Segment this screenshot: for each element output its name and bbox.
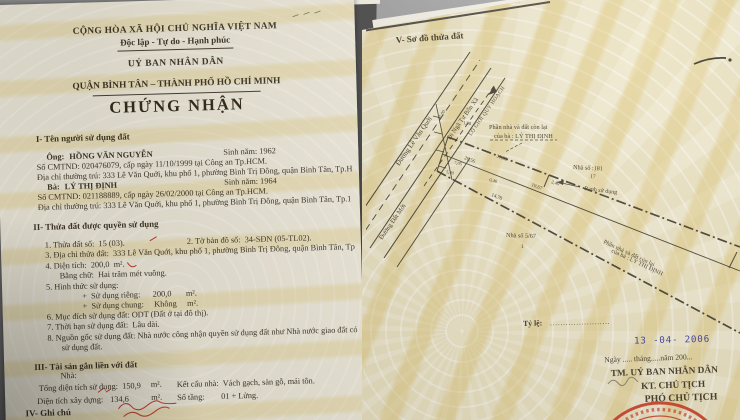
owner-2-label: Bà: xyxy=(47,182,60,191)
owner-2-birth: Sinh năm: 1964 xyxy=(224,177,277,187)
red-mark-area xyxy=(127,262,136,267)
red-check-parcel xyxy=(150,237,157,241)
section-2-heading: II- Thửa đất được quyền sử dụng xyxy=(33,220,158,232)
total-floor-unit: m². xyxy=(151,381,162,390)
district-line: QUẬN BÌNH TÂN – THÀNH PHỐ HỒ CHÍ MINH xyxy=(0,75,356,94)
built-area-unit: m². xyxy=(151,394,162,403)
section-1-heading: I- Tên người sử dụng đất xyxy=(36,132,130,143)
certificate-photo: CỘNG HÒA XÃ HỘI CHỦ NGHĨA VIỆT NAM Độc l… xyxy=(0,0,740,420)
section-4-heading: IV- Ghi chú xyxy=(25,408,71,418)
floors-value: 01 + Lửng. xyxy=(221,392,258,401)
certificate-left-page: CỘNG HÒA XÃ HỘI CHỦ NGHĨA VIỆT NAM Độc l… xyxy=(0,0,366,420)
motto-underline xyxy=(117,47,233,51)
origin-line-2: sử dụng đất. xyxy=(62,343,103,352)
house-structure: Kết cấu nhà: Vách gạch, sàn gỗ, mái tôn. xyxy=(177,377,315,389)
area-in-words: Bằng chữ: Hai trăm mét vuông. xyxy=(60,269,167,280)
section-3-heading: III- Tài sản gắn liền với đất xyxy=(34,360,137,372)
owner-1-label: Ông: xyxy=(46,152,64,161)
built-area-label: Diện tích xây dựng: xyxy=(37,396,103,406)
red-annotation-scribble-2 xyxy=(123,407,169,417)
faint-pen-marks xyxy=(292,11,320,17)
committee-line: UỶ BAN NHÂN DÂN xyxy=(0,54,356,73)
house-label: Nhà: xyxy=(60,372,76,381)
owner-1-birth: Sinh năm: 1962 xyxy=(223,147,276,157)
doc-title: CHỨNG NHẬN xyxy=(0,93,357,120)
total-floor-area: Tổng diện tích sử dụng: 150,9 xyxy=(39,382,141,393)
certificate-right-page xyxy=(362,0,740,420)
floors-label: Số tầng: xyxy=(177,393,205,402)
built-area-value: 134,6 xyxy=(110,396,129,405)
owner-2-name: LÝ THỊ ĐỊNH xyxy=(65,181,118,191)
